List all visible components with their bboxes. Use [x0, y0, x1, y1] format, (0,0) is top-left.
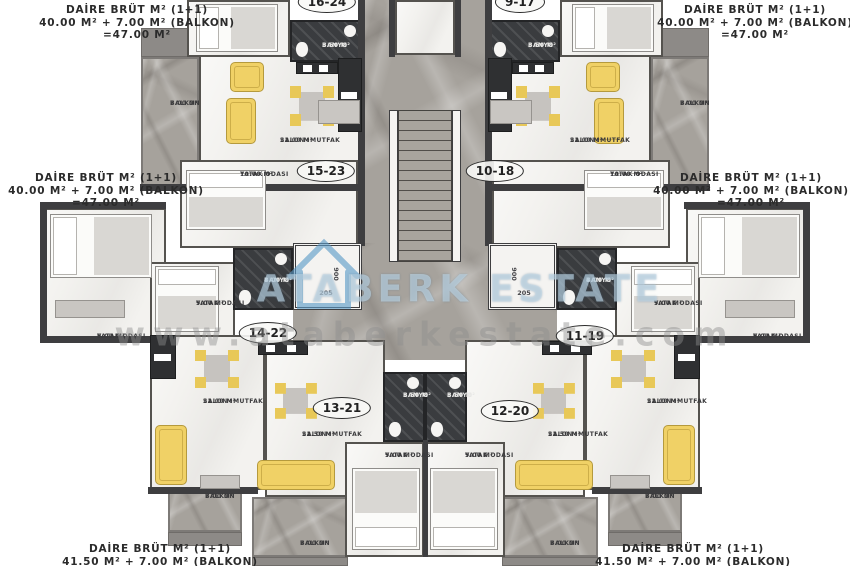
annotation-bottom-left: DAİRE BRÜT M² (1+1) 41.50 M² + 7.00 M² (… — [54, 543, 266, 566]
annotation-top-right: DAİRE BRÜT M² (1+1) 40.00 M² + 7.00 M² (… — [650, 4, 850, 42]
annotation-line: 40.00 M² + 7.00 M² (BALKON) — [650, 17, 850, 30]
bed — [352, 468, 420, 550]
coffee-table — [318, 100, 360, 124]
annotation-line: 41.50 M² + 7.00 M² (BALKON) — [586, 556, 800, 566]
vestibule — [395, 0, 455, 55]
bed — [698, 214, 800, 278]
wall — [803, 202, 810, 343]
unit-number: 15-23 — [297, 160, 355, 182]
bed — [430, 468, 498, 550]
wardrobe — [725, 300, 795, 318]
coffee-table — [610, 475, 650, 489]
kitchen-counter — [674, 335, 700, 379]
bed — [572, 4, 654, 52]
bed — [631, 266, 695, 332]
annotation-line: =47.00 M² — [650, 29, 850, 42]
bed — [50, 214, 152, 278]
sofa — [226, 98, 256, 144]
wardrobe — [55, 300, 125, 318]
unit-number: 12-20 — [481, 400, 539, 422]
elevator — [488, 243, 557, 310]
kitchen-counter — [296, 62, 338, 74]
sofa — [663, 425, 695, 485]
bathroom — [425, 372, 467, 442]
coffee-table — [200, 475, 240, 489]
annotation-line: 41.50 M² + 7.00 M² (BALKON) — [54, 556, 266, 566]
sofa — [257, 460, 335, 490]
bathroom — [290, 20, 362, 62]
sofa — [515, 460, 593, 490]
wall — [40, 202, 47, 343]
bathroom — [488, 20, 560, 62]
sofa — [155, 425, 187, 485]
unit-number: 11-19 — [556, 325, 614, 347]
annotation-line: DAİRE BRÜT M² (1+1) — [586, 543, 800, 556]
dining-set — [533, 383, 575, 419]
annotation-line: =47.00 M² — [652, 197, 850, 210]
annotation-line: DAİRE BRÜT M² (1+1) — [0, 172, 212, 185]
stair-rail — [389, 110, 398, 262]
annotation-line: =47.00 M² — [0, 197, 212, 210]
parapet-wall — [502, 557, 598, 566]
parapet-wall — [252, 557, 348, 566]
balcony — [502, 497, 598, 557]
annotation-line: =47.00 M² — [32, 29, 242, 42]
annotation-mid-left: DAİRE BRÜT M² (1+1) 40.00 M² + 7.00 M² (… — [0, 172, 212, 210]
elevator — [293, 243, 362, 310]
annotation-line: DAİRE BRÜT M² (1+1) — [54, 543, 266, 556]
elevator-dimension-label: 205 — [517, 289, 531, 297]
wall — [455, 0, 461, 57]
balcony — [252, 497, 348, 557]
unit-number: 10-18 — [466, 160, 524, 182]
annotation-line: 40.00 M² + 7.00 M² (BALKON) — [0, 185, 212, 198]
dining-set — [611, 350, 655, 388]
staircase — [398, 110, 452, 262]
annotation-bottom-right: DAİRE BRÜT M² (1+1) 41.50 M² + 7.00 M² (… — [586, 543, 800, 566]
elevator-dimension-label: 900 — [332, 267, 340, 281]
unit-number: 14-22 — [239, 322, 297, 344]
kitchen-counter — [512, 62, 554, 74]
bed — [155, 266, 219, 332]
annotation-mid-right: DAİRE BRÜT M² (1+1) 40.00 M² + 7.00 M² (… — [652, 172, 850, 210]
elevator-dimension-label: 900 — [510, 267, 518, 281]
annotation-line: DAİRE BRÜT M² (1+1) — [650, 4, 850, 17]
annotation-top-left: DAİRE BRÜT M² (1+1) 40.00 M² + 7.00 M² (… — [32, 4, 242, 42]
annotation-line: 40.00 M² + 7.00 M² (BALKON) — [32, 17, 242, 30]
kitchen-counter — [150, 335, 176, 379]
elevator-dimension-label: 205 — [319, 289, 333, 297]
dining-set — [195, 350, 239, 388]
stair-rail — [452, 110, 461, 262]
annotation-line: 40.00 M² + 7.00 M² (BALKON) — [652, 185, 850, 198]
annotation-line: DAİRE BRÜT M² (1+1) — [652, 172, 850, 185]
bathroom — [383, 372, 425, 442]
coffee-table — [490, 100, 532, 124]
floor-plan-canvas: DAİRE BRÜT M² (1+1) 40.00 M² + 7.00 M² (… — [0, 0, 850, 566]
armchair — [230, 62, 264, 92]
dining-set — [275, 383, 317, 419]
armchair — [586, 62, 620, 92]
wall — [389, 0, 395, 57]
unit-number: 13-21 — [313, 397, 371, 419]
annotation-line: DAİRE BRÜT M² (1+1) — [32, 4, 242, 17]
